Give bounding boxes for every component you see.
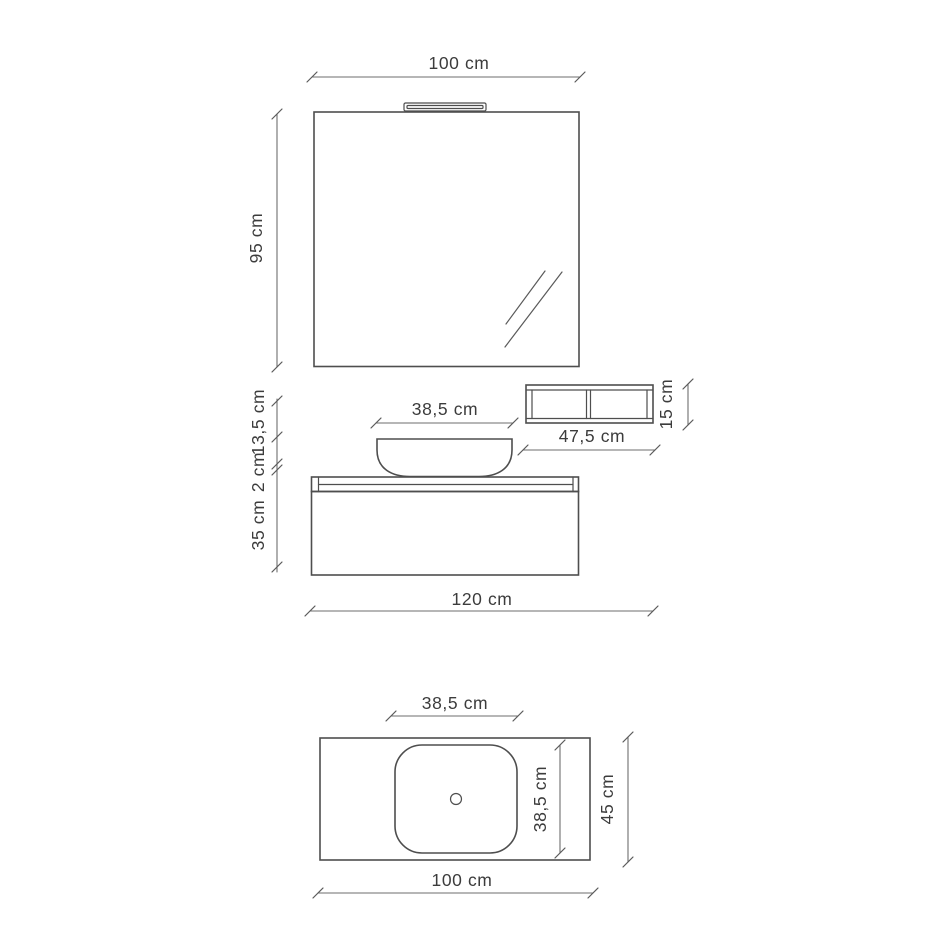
dim-left-stack: 13,5 cm 2 cm 35 cm bbox=[248, 389, 282, 572]
basin-depth-label: 38,5 cm bbox=[530, 766, 550, 832]
mirror bbox=[314, 112, 579, 367]
countertop-thickness-label: 2 cm bbox=[248, 452, 268, 492]
dim-mirror-width: 100 cm bbox=[307, 53, 585, 82]
total-width-label: 120 cm bbox=[452, 589, 513, 609]
technical-drawing-canvas: 100 cm 95 cm bbox=[0, 0, 950, 950]
dim-total-width: 120 cm bbox=[305, 589, 658, 616]
top-view: 38,5 cm 38,5 cm 45 cm 100 cm bbox=[313, 693, 633, 898]
mirror-glint-lines bbox=[505, 271, 562, 347]
shelf-width-label: 47,5 cm bbox=[559, 426, 625, 446]
mirror-light-fixture bbox=[404, 103, 486, 111]
countertop-front bbox=[312, 477, 579, 492]
dim-shelf-height: 15 cm bbox=[656, 379, 693, 430]
shelf-height-label: 15 cm bbox=[656, 379, 676, 430]
dim-basin-depth: 38,5 cm bbox=[530, 740, 565, 858]
basin-width-front-label: 38,5 cm bbox=[412, 399, 478, 419]
dim-basin-width-top: 38,5 cm bbox=[386, 693, 523, 721]
basin-width-top-label: 38,5 cm bbox=[422, 693, 488, 713]
counter-width-label: 100 cm bbox=[432, 870, 493, 890]
counter-depth-label: 45 cm bbox=[597, 774, 617, 825]
basin-plan bbox=[395, 745, 517, 853]
cabinet-height-label: 35 cm bbox=[248, 500, 268, 551]
dim-counter-depth: 45 cm bbox=[597, 732, 633, 867]
dim-mirror-height: 95 cm bbox=[246, 109, 282, 372]
mirror-height-label: 95 cm bbox=[246, 213, 266, 264]
wall-shelf bbox=[526, 385, 653, 423]
front-view: 100 cm 95 cm bbox=[246, 53, 693, 616]
mirror-width-label: 100 cm bbox=[429, 53, 490, 73]
basin-front bbox=[377, 439, 512, 477]
drain-hole bbox=[451, 794, 462, 805]
cabinet-body bbox=[312, 492, 579, 576]
dim-counter-width: 100 cm bbox=[313, 870, 598, 898]
basin-height-label: 13,5 cm bbox=[248, 389, 268, 455]
dim-shelf-width: 47,5 cm bbox=[518, 426, 660, 455]
vanity-drawing-svg: 100 cm 95 cm bbox=[0, 0, 950, 950]
dim-basin-width-front: 38,5 cm bbox=[371, 399, 518, 428]
